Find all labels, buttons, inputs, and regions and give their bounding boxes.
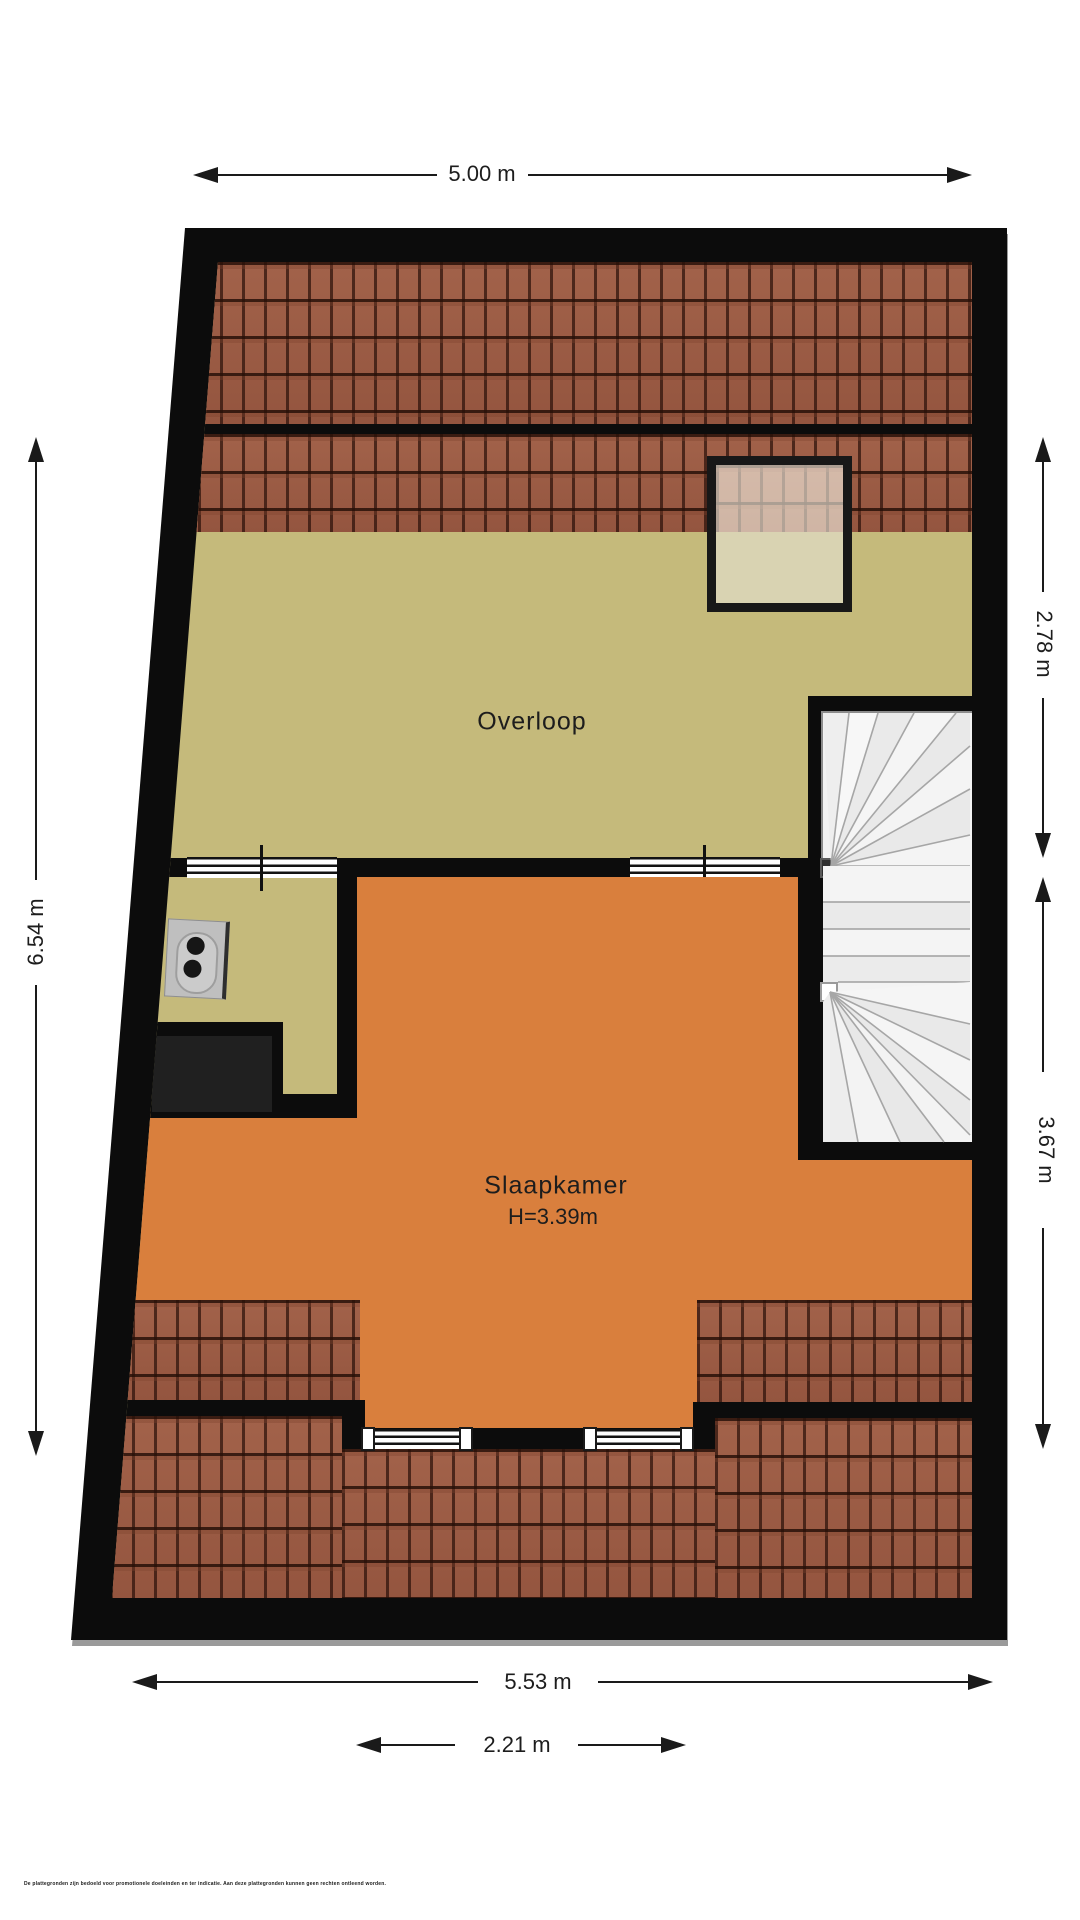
room-label-slaapkamer: Slaapkamer — [484, 1172, 627, 1201]
skylight-glass-over-floor — [716, 532, 843, 603]
dormer-window-right — [587, 1429, 693, 1449]
slaapkamer-floor-left — [0, 1110, 357, 1300]
disclaimer-text: De plattegronden zijn bedoeld voor promo… — [24, 1881, 386, 1887]
wall-notch-bottom — [277, 1094, 357, 1118]
washbasin — [164, 918, 230, 999]
dormer-window-right-cap-a — [583, 1427, 597, 1451]
stair-newel-upper — [820, 858, 838, 878]
roof-section-bottom-lower-left — [0, 1416, 342, 1598]
roof-section-bottom-lower-mid — [342, 1449, 715, 1598]
dimension-label-right-lower: 3.67 m — [1033, 1116, 1059, 1183]
stair-newel-lower — [820, 982, 838, 1002]
slaapkamer-floor-under-stairs — [798, 1160, 972, 1300]
slaapkamer-floor-main — [357, 877, 798, 1300]
floorplan-page: Overloop Slaapkamer H=3.39m 5.00 m 6.54 … — [0, 0, 1080, 1920]
dormer-window-left — [365, 1429, 472, 1449]
roof-section-bottom-upper-left — [0, 1300, 360, 1400]
stairwell-left-wall-upper — [808, 713, 823, 877]
wall-strip-right — [337, 858, 357, 1118]
dormer-window-right-cap-b — [680, 1427, 694, 1451]
stairwell-bottom-wall — [798, 1142, 972, 1160]
interior-window-left-tick — [260, 845, 263, 891]
wall-bedroom-stairwell — [798, 877, 823, 1142]
roof-ridge-divider-top — [0, 424, 972, 434]
staircase — [823, 713, 972, 1142]
closet-void — [152, 1036, 272, 1112]
dimension-label-left: 6.54 m — [23, 898, 49, 965]
room-label-overloop: Overloop — [477, 708, 586, 737]
roof-divider-bottom-left — [0, 1400, 342, 1416]
dimension-label-right-upper: 2.78 m — [1031, 610, 1057, 677]
dimension-label-bottom-inner: 2.21 m — [483, 1732, 550, 1758]
dimension-label-bottom-outer: 5.53 m — [504, 1669, 571, 1695]
skylight-glass-over-roof — [716, 465, 843, 532]
slaapkamer-dormer-extension — [360, 1300, 697, 1430]
roof-section-bottom-upper-right — [697, 1300, 972, 1402]
roof-divider-bottom-right — [715, 1402, 972, 1418]
room-label-slaapkamer-height: H=3.39m — [508, 1204, 598, 1230]
dormer-window-left-cap-b — [459, 1427, 473, 1451]
dimension-label-top: 5.00 m — [448, 161, 515, 187]
roof-section-bottom-lower-right — [715, 1418, 972, 1598]
roof-section-top-upper — [0, 262, 972, 424]
stairwell-top-wall — [808, 696, 972, 713]
skylight-window — [707, 456, 852, 612]
dormer-window-left-cap-a — [361, 1427, 375, 1451]
